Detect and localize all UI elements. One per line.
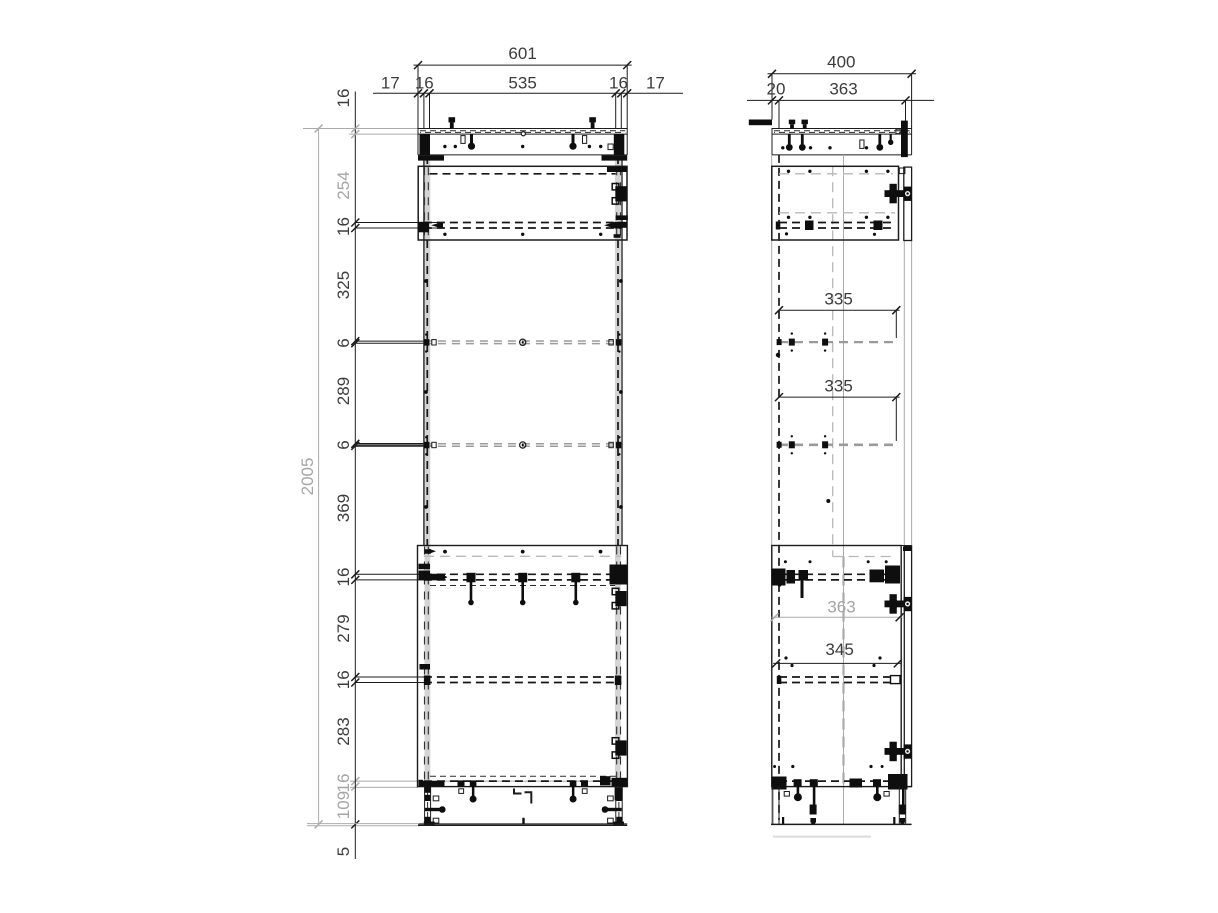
svg-text:369: 369	[334, 494, 353, 522]
svg-text:345: 345	[825, 640, 853, 659]
svg-text:16: 16	[415, 73, 434, 92]
svg-text:6: 6	[334, 440, 353, 449]
svg-text:16: 16	[334, 89, 353, 108]
svg-text:325: 325	[334, 271, 353, 299]
svg-text:17: 17	[646, 73, 665, 92]
svg-text:6: 6	[334, 338, 353, 347]
svg-text:363: 363	[827, 598, 855, 617]
svg-text:283: 283	[334, 717, 353, 745]
svg-text:16: 16	[334, 568, 353, 587]
svg-text:535: 535	[508, 73, 536, 92]
svg-text:2005: 2005	[298, 458, 317, 496]
svg-text:279: 279	[334, 614, 353, 642]
svg-text:16: 16	[334, 670, 353, 689]
svg-text:16: 16	[609, 73, 628, 92]
svg-text:17: 17	[381, 73, 400, 92]
svg-text:601: 601	[508, 44, 536, 63]
svg-text:5: 5	[334, 847, 353, 856]
svg-text:335: 335	[824, 377, 852, 396]
svg-text:20: 20	[767, 80, 786, 99]
svg-text:254: 254	[334, 171, 353, 199]
svg-text:109: 109	[334, 791, 353, 819]
svg-text:363: 363	[829, 80, 857, 99]
svg-text:335: 335	[824, 290, 852, 309]
svg-text:289: 289	[334, 377, 353, 405]
svg-text:16: 16	[334, 774, 353, 793]
svg-text:16: 16	[334, 217, 353, 236]
svg-text:400: 400	[827, 53, 855, 72]
